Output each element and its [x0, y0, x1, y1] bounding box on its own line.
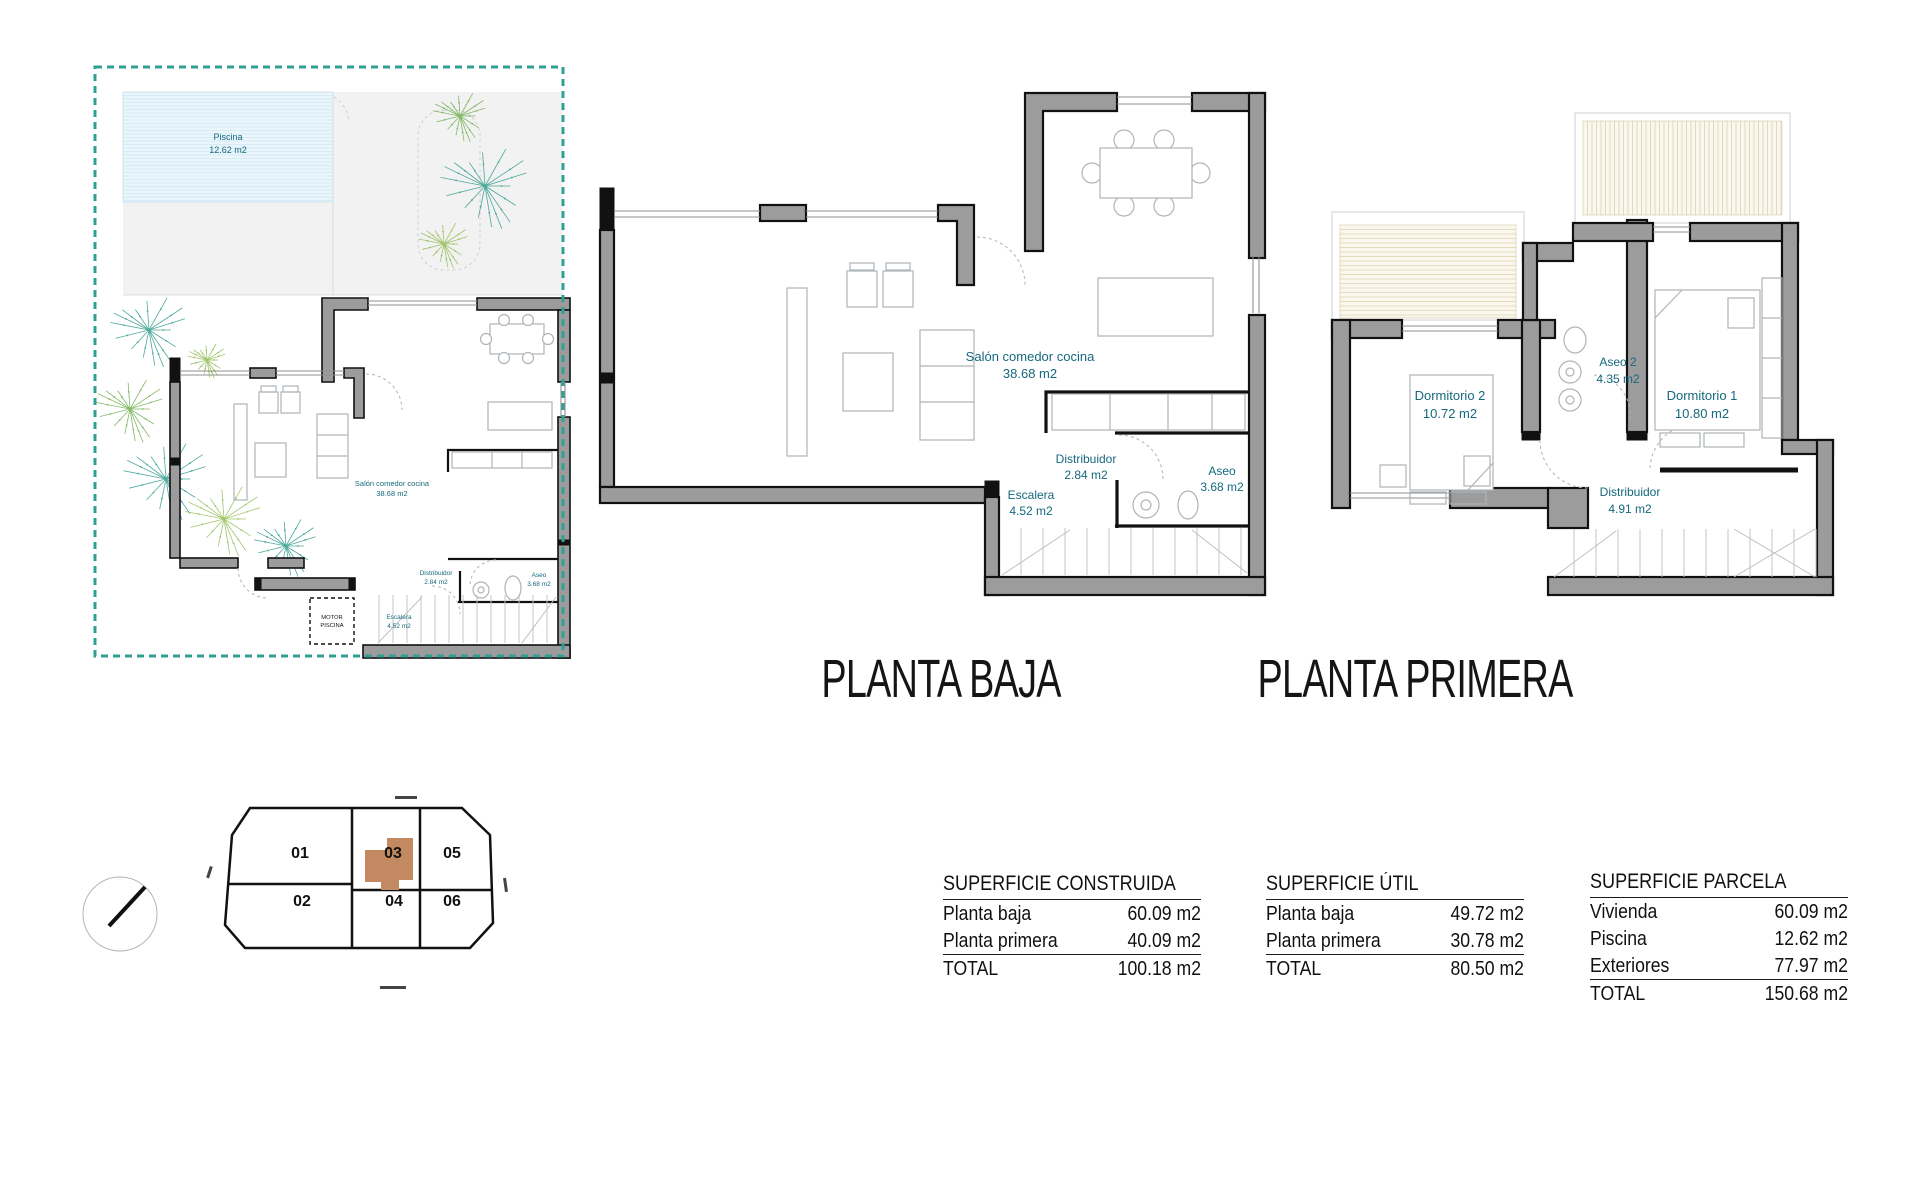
room-label-distribuidor: Distribuidor: [420, 570, 454, 577]
site-plan: Piscina 12.62 m2: [92, 62, 564, 658]
room-area-salon: 38.68 m2: [1003, 366, 1057, 381]
plot-number-04: 04: [385, 893, 403, 910]
room-label-salon: Salón comedor cocina: [355, 479, 430, 488]
room-label-escalera: Escalera: [1008, 488, 1055, 502]
table-row: Vivienda 60.09 m2: [1590, 898, 1848, 925]
plot-number-05: 05: [443, 845, 461, 862]
pool: Piscina 12.62 m2: [123, 92, 333, 202]
room-area-dormitorio2: 10.72 m2: [1423, 406, 1477, 421]
plot-number-06: 06: [443, 893, 461, 910]
site-house-labels: Salón comedor cocina 38.68 m2 Distribuid…: [310, 479, 551, 644]
table-total-row: TOTAL 80.50 m2: [1266, 954, 1524, 982]
room-label-distribuidor: Distribuidor: [1056, 452, 1117, 466]
plot-outline: [206, 796, 508, 989]
planta-baja-plan: Salón comedor cocina 38.68 m2 Distribuid…: [600, 85, 1270, 600]
table-row: Planta primera 30.78 m2: [1266, 927, 1524, 954]
table-row: Piscina 12.62 m2: [1590, 925, 1848, 952]
table-row: Exteriores 77.97 m2: [1590, 952, 1848, 979]
room-label-salon: Salón comedor cocina: [966, 349, 1095, 364]
room-label-dormitorio1: Dormitorio 1: [1667, 388, 1738, 403]
table-row: Planta baja 60.09 m2: [943, 900, 1201, 927]
planta-baja-title: PLANTA BAJA: [770, 648, 1090, 710]
site-house-interior: [238, 374, 558, 643]
room-area-escalera: 4.52 m2: [387, 623, 411, 630]
room-label-aseo: Aseo: [532, 572, 547, 579]
site-house-furniture: [234, 315, 554, 601]
table-superficie-construida: SUPERFICIE CONSTRUIDA Planta baja 60.09 …: [943, 872, 1201, 982]
room-area-aseo: 3.68 m2: [1200, 480, 1244, 494]
pool-area: 12.62 m2: [209, 145, 247, 155]
motor-label-1: MOTOR: [321, 615, 342, 621]
plot-number-02: 02: [293, 893, 311, 910]
room-area-distribuidor: 2.84 m2: [1064, 468, 1108, 482]
pool-label: Piscina: [213, 132, 242, 142]
table-row: Planta primera 40.09 m2: [943, 927, 1201, 954]
planta-primera-plan: Dormitorio 2 10.72 m2 Aseo 2 4.35 m2 Dor…: [1330, 88, 1840, 618]
table-total-row: TOTAL 100.18 m2: [943, 954, 1201, 982]
room-area-aseo: 3.68 m2: [527, 581, 551, 588]
pool-motor-box: MOTOR PISCINA: [310, 598, 354, 644]
room-label-escalera: Escalera: [386, 614, 412, 621]
room-area-distribuidor: 4.91 m2: [1608, 502, 1652, 516]
planta-primera-title: PLANTA PRIMERA: [1190, 648, 1510, 710]
room-area-escalera: 4.52 m2: [1009, 504, 1053, 518]
table-superficie-util: SUPERFICIE ÚTIL Planta baja 49.72 m2 Pla…: [1266, 872, 1524, 982]
table-title: SUPERFICIE PARCELA: [1590, 870, 1848, 898]
room-label-aseo2: Aseo 2: [1599, 355, 1637, 369]
table-row: Planta baja 49.72 m2: [1266, 900, 1524, 927]
room-label-dormitorio2: Dormitorio 2: [1415, 388, 1486, 403]
floorplan-sheet: { "colors": { "label_teal": "#15697d", "…: [0, 0, 1920, 1200]
plot-number-03: 03: [384, 845, 402, 862]
table-title: SUPERFICIE ÚTIL: [1266, 872, 1524, 900]
room-label-distribuidor: Distribuidor: [1600, 485, 1661, 499]
pb-furniture: [787, 130, 1213, 519]
plot-number-01: 01: [291, 845, 309, 862]
table-title: SUPERFICIE CONSTRUIDA: [943, 872, 1201, 900]
pb-interior: [977, 237, 1249, 575]
room-area-distribuidor: 2.84 m2: [424, 579, 448, 586]
room-area-dormitorio1: 10.80 m2: [1675, 406, 1729, 421]
room-area-salon: 38.68 m2: [376, 489, 407, 498]
compass-icon: [83, 877, 157, 951]
table-superficie-parcela: SUPERFICIE PARCELA Vivienda 60.09 m2 Pis…: [1590, 870, 1848, 1007]
room-label-aseo: Aseo: [1208, 464, 1236, 478]
plot-map: 01 02 03 04 05 06: [60, 788, 520, 1013]
table-total-row: TOTAL 150.68 m2: [1590, 979, 1848, 1007]
pp-terraces: [1332, 113, 1790, 320]
room-area-aseo2: 4.35 m2: [1596, 372, 1640, 386]
motor-label-2: PISCINA: [320, 623, 343, 629]
